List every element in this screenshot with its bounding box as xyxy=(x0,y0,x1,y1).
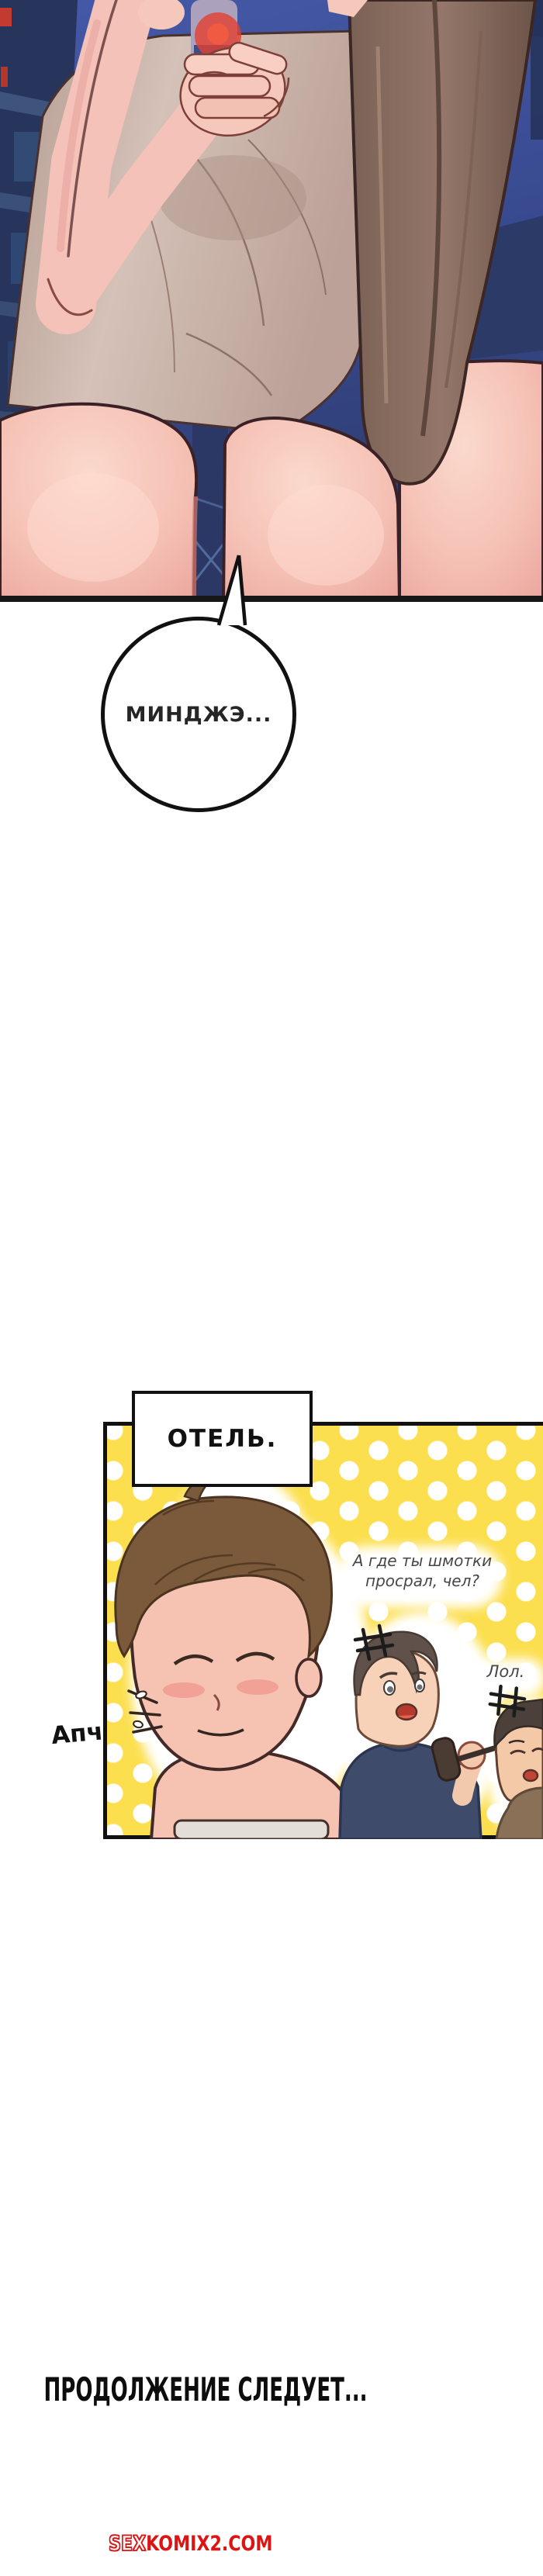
watermark: SEXKOMIX2.COM xyxy=(109,2532,272,2556)
comic-page: МИНДЖЭ... xyxy=(0,0,543,2576)
red-sign xyxy=(0,8,12,26)
red-sign-small xyxy=(1,67,8,87)
glow-blob xyxy=(340,1612,503,1837)
panel-caption-text: ОТЕЛЬ. xyxy=(168,1425,278,1453)
thigh-highlight xyxy=(268,485,384,586)
watermark-prefix: SEX xyxy=(109,2532,146,2556)
speech-bubble-tail xyxy=(208,554,258,628)
reply-text: Лол. xyxy=(475,1662,537,1681)
glow-blob xyxy=(177,1472,301,1581)
dialogue-text: А где ты шмотки просрал, чел? xyxy=(343,1551,502,1591)
panel-border-line xyxy=(0,596,543,602)
dialogue-line-1: А где ты шмотки xyxy=(343,1551,502,1571)
watermark-suffix: KOMIX2.COM xyxy=(146,2532,272,2556)
to-be-continued-text: ПРОДОЛЖЕНИЕ СЛЕДУЕТ... xyxy=(43,2370,367,2408)
speech-bubble-text: МИНДЖЭ... xyxy=(126,703,272,727)
street-night-illustration xyxy=(0,0,543,602)
panel-caption-box: ОТЕЛЬ. xyxy=(132,1391,313,1487)
dialogue-line-2: просрал, чел? xyxy=(343,1571,502,1591)
thigh-highlight xyxy=(27,473,159,582)
speech-bubble: МИНДЖЭ... xyxy=(101,617,296,812)
